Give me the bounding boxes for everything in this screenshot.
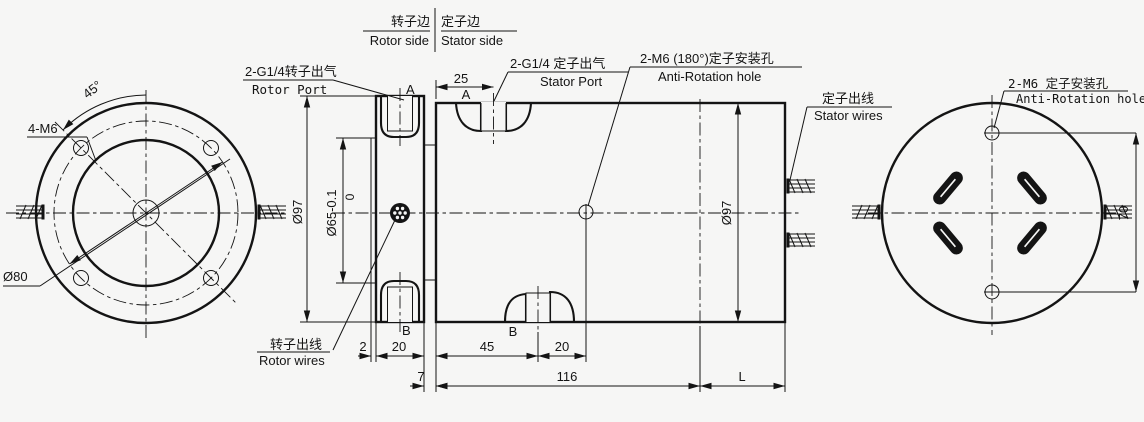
rear-view-stator-face: 70 2-M6 定子安装孔 Anti-Rotation hole xyxy=(852,76,1144,335)
label-stator-port-en: Stator Port xyxy=(540,74,603,89)
dim-text-hole-spacing: 70 xyxy=(1116,206,1131,220)
dim-text-ext-length: L xyxy=(738,369,746,384)
wire-slot xyxy=(930,169,965,207)
label-stator-wires-en: Stator wires xyxy=(814,108,883,123)
dim-text-hole-offset: 20 xyxy=(555,339,569,354)
engineering-drawing-canvas: Ø80 45° 4-M6 转子边 Rotor side 定子边 Stator s… xyxy=(0,0,1144,422)
label-rotor-port-cn: 2-G1/4转子出气 xyxy=(245,64,337,79)
dim-text-housing-length: 116 xyxy=(557,369,578,384)
port-mark-rotor-b: B xyxy=(402,323,411,338)
front-view-rotor-flange: Ø80 45° 4-M6 xyxy=(3,77,286,338)
label-leader xyxy=(994,91,1004,128)
wire-slot xyxy=(1014,169,1049,207)
dim-text-45deg: 45° xyxy=(80,77,105,101)
label-anti-rotation-mid-en: Anti-Rotation hole xyxy=(658,69,761,84)
dim-text-port-b-offset: 45 xyxy=(480,339,494,354)
label-rotor-port-en: Rotor Port xyxy=(252,82,327,97)
side-divider-header: 转子边 Rotor side 定子边 Stator side xyxy=(363,8,517,52)
label-leader xyxy=(494,72,508,101)
dim-text-housing-dia: Ø97 xyxy=(719,201,734,226)
label-anti-rotation-right-en: Anti-Rotation hole xyxy=(1016,92,1144,106)
stator-port-a-wall xyxy=(456,103,481,131)
stator-wires-bundle-icon xyxy=(852,205,879,220)
dim-arc-45 xyxy=(63,95,146,130)
dim-text-bore: Ø65-0.1 xyxy=(324,190,339,237)
stator-port-b-wall xyxy=(550,292,574,322)
stator-wires-bundle-icon xyxy=(788,179,815,194)
label-leader xyxy=(790,107,807,180)
label-stator-port-cn: 2-G1/4 定子出气 xyxy=(510,56,605,71)
port-mark-rotor-a: A xyxy=(406,82,415,97)
header-rotor-cn: 转子边 xyxy=(391,14,430,29)
rotor-cable-section-icon xyxy=(390,203,410,223)
label-rotor-wires-cn: 转子出线 xyxy=(270,337,322,352)
header-stator-cn: 定子边 xyxy=(441,14,480,29)
rotor-wires-leader xyxy=(333,220,395,350)
dim-text-flange-width: 20 xyxy=(392,339,406,354)
wire-slot xyxy=(1014,219,1049,257)
label-anti-rotation-right-cn: 2-M6 定子安装孔 xyxy=(1008,76,1109,91)
port-mark-stator-b: B xyxy=(509,324,518,339)
dim-text-dia80: Ø80 xyxy=(3,269,28,284)
stator-wires-bundle-icon xyxy=(788,233,815,248)
label-rotor-wires-en: Rotor wires xyxy=(259,353,325,368)
label-bolt-holes: 4-M6 xyxy=(28,121,58,136)
section-view: A B Ø97 0 Ø65-0.1 Ø97 A xyxy=(290,67,815,392)
rotor-wires-bundle-icon xyxy=(16,205,43,220)
dim-text-bore-tol: 0 xyxy=(343,193,357,200)
wire-slot xyxy=(930,219,965,257)
dim-text-gap: 7 xyxy=(417,369,424,384)
callout-labels: 2-G1/4转子出气 Rotor Port 2-G1/4 定子出气 Stator… xyxy=(243,51,892,368)
dim-text-port-offset: 25 xyxy=(454,71,468,86)
header-stator-en: Stator side xyxy=(441,33,503,48)
port-mark-stator-a: A xyxy=(462,87,471,102)
dim-line-dia80 xyxy=(40,159,230,286)
stator-port-a-wall xyxy=(506,103,531,131)
header-rotor-en: Rotor side xyxy=(370,33,429,48)
dim-text-flange-dia: Ø97 xyxy=(290,200,305,225)
label-anti-rotation-mid-cn: 2-M6 (180°)定子安装孔 xyxy=(640,51,774,66)
stator-port-b-wall xyxy=(505,294,526,322)
rotor-wires-bundle-icon xyxy=(259,205,286,220)
label-stator-wires-cn: 定子出线 xyxy=(822,91,874,106)
label-leader xyxy=(333,80,404,100)
dim-text-boss: 2 xyxy=(359,339,366,354)
